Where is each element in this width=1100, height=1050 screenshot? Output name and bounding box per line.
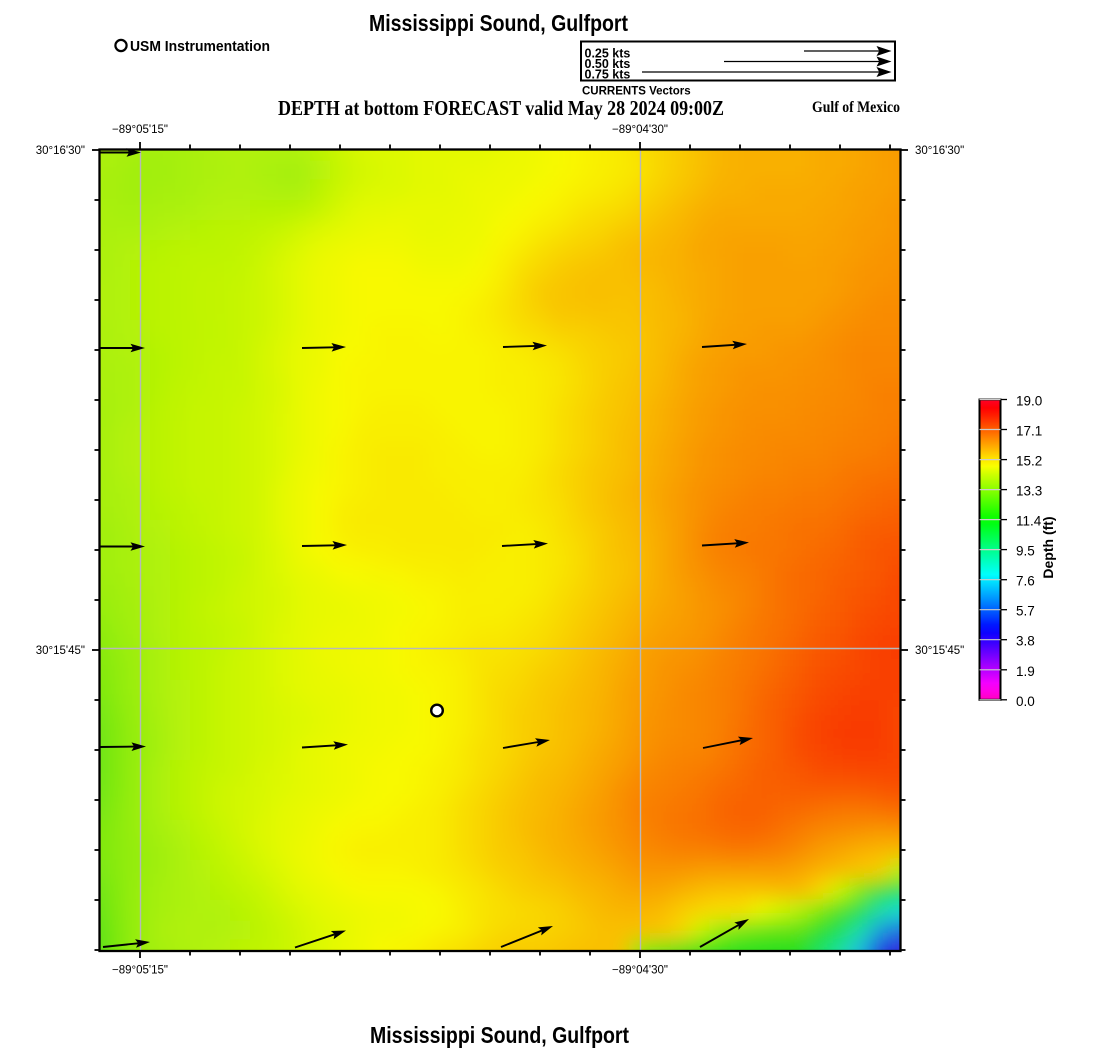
svg-text:19.0: 19.0: [1016, 394, 1042, 409]
svg-text:13.3: 13.3: [1016, 484, 1042, 499]
svg-text:30°16'30": 30°16'30": [915, 145, 964, 157]
svg-text:11.4: 11.4: [1016, 514, 1042, 529]
svg-text:−89°04'30": −89°04'30": [612, 124, 668, 136]
svg-text:−89°05'15": −89°05'15": [112, 124, 168, 136]
svg-text:30°15'45": 30°15'45": [915, 645, 964, 657]
svg-text:Mississippi Sound, Gulfport: Mississippi Sound, Gulfport: [370, 1022, 629, 1048]
svg-text:Gulf of Mexico: Gulf of Mexico: [812, 99, 900, 116]
svg-text:Depth (ft): Depth (ft): [1040, 516, 1056, 578]
svg-text:7.6: 7.6: [1016, 574, 1035, 589]
svg-text:0.75 kts: 0.75 kts: [585, 67, 631, 81]
svg-text:15.2: 15.2: [1016, 454, 1042, 469]
svg-text:0.0: 0.0: [1016, 694, 1035, 709]
svg-text:1.9: 1.9: [1016, 664, 1035, 679]
svg-text:30°15'45": 30°15'45": [36, 645, 85, 657]
svg-text:5.7: 5.7: [1016, 604, 1035, 619]
svg-text:9.5: 9.5: [1016, 544, 1035, 559]
svg-text:−89°04'30": −89°04'30": [612, 965, 668, 977]
svg-text:USM Instrumentation: USM Instrumentation: [130, 39, 270, 55]
svg-text:DEPTH at bottom FORECAST valid: DEPTH at bottom FORECAST valid May 28 20…: [278, 96, 724, 120]
svg-text:−89°05'15": −89°05'15": [112, 965, 168, 977]
svg-text:30°16'30": 30°16'30": [36, 145, 85, 157]
svg-text:Mississippi Sound, Gulfport: Mississippi Sound, Gulfport: [369, 10, 628, 36]
svg-text:3.8: 3.8: [1016, 634, 1035, 649]
svg-text:17.1: 17.1: [1016, 424, 1042, 439]
